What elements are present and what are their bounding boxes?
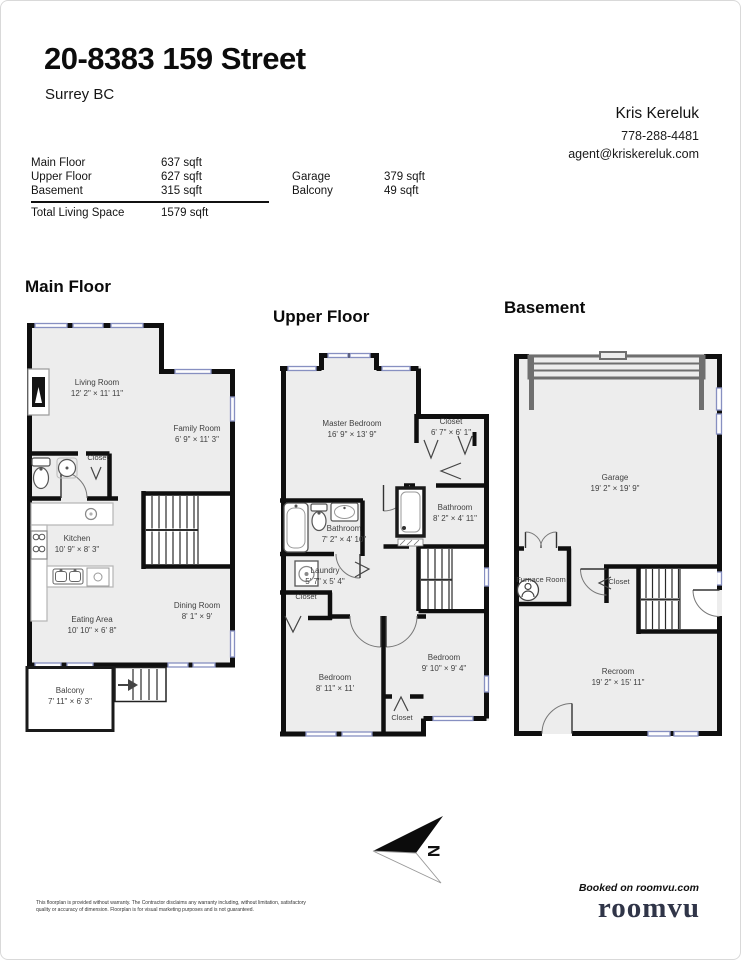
room-label: Garage 19' 2" × 19' 9": [591, 472, 640, 494]
room-label: Laundry 5' 7" x 5' 4": [305, 565, 344, 587]
room-label: Balcony 7' 11" × 6' 3": [48, 685, 92, 707]
staircase: [421, 549, 484, 609]
page-subtitle: Surrey BC: [45, 86, 114, 103]
heading-basement: Basement: [504, 298, 585, 318]
room-label: Closet: [87, 452, 108, 463]
area-extra-value: 379 sqft: [384, 171, 425, 183]
main-floor-drawing: [25, 319, 237, 739]
area-row-label: Main Floor: [31, 157, 85, 169]
area-total-value: 1579 sqft: [161, 207, 208, 219]
main-floor-plan: Living Room 12' 2" × 11' 11" Family Room…: [25, 319, 237, 739]
staircase: [641, 569, 717, 629]
double-sink-icon: [53, 569, 83, 584]
entry-stairs: [115, 668, 166, 702]
room-label: Bedroom 9' 10" × 9' 4": [422, 652, 467, 674]
table-divider: [31, 201, 269, 203]
area-row-label: Basement: [31, 185, 83, 197]
north-arrow-icon: N: [364, 807, 452, 891]
basement-plan: Garage 19' 2" × 19' 9" Furnace Room Clos…: [512, 350, 724, 740]
heading-upper-floor: Upper Floor: [273, 307, 369, 327]
bathtub-icon: [284, 503, 308, 552]
shower-icon: [397, 488, 424, 546]
room-label: Family Room 6' 9" × 11' 3": [173, 423, 220, 445]
area-row-label: Upper Floor: [31, 171, 92, 183]
roomvu-logo: roomvu: [598, 892, 700, 925]
stove-icon: [31, 531, 47, 559]
north-letter: N: [424, 845, 443, 857]
room-label: Bathroom 8' 2" × 4' 11": [433, 502, 477, 524]
agent-email: agent@kriskereluk.com: [568, 148, 699, 161]
area-extra-value: 49 sqft: [384, 185, 419, 197]
heading-main-floor: Main Floor: [25, 277, 111, 297]
room-label: Bathroom 7' 2" × 4' 10": [322, 523, 367, 545]
room-label: Eating Area 10' 10" × 6' 8": [68, 614, 117, 636]
area-row-value: 637 sqft: [161, 157, 202, 169]
room-label: Kitchen 10' 9" × 8' 3": [55, 533, 100, 555]
agent-phone: 778-288-4481: [568, 130, 699, 143]
staircase: [146, 496, 230, 564]
room-label: Recroom 19' 2" × 15' 11": [592, 666, 645, 688]
room-label: Furnace Room: [516, 574, 566, 585]
upper-floor-drawing: [278, 350, 492, 740]
room-label: Living Room 12' 2" × 11' 11": [71, 377, 123, 399]
area-row-value: 315 sqft: [161, 185, 202, 197]
dishwasher-icon: [87, 568, 109, 586]
room-label: Closet: [608, 576, 629, 587]
disclaimer-text: This floorplan is provided without warra…: [36, 900, 326, 914]
toilet-icon: [32, 458, 50, 489]
area-extra-label: Garage: [292, 171, 330, 183]
floorplan-page: 20-8383 159 Street Surrey BC Kris Kerelu…: [0, 0, 741, 960]
area-row-value: 627 sqft: [161, 171, 202, 183]
fireplace-icon: [28, 369, 49, 415]
area-extra-label: Balcony: [292, 185, 333, 197]
room-label: Closet 6' 7" × 6' 1": [431, 416, 471, 438]
area-total-label: Total Living Space: [31, 207, 124, 219]
room-label: Closet: [295, 591, 316, 602]
room-label: Master Bedroom 16' 9" × 13' 9": [322, 418, 381, 440]
agent-name: Kris Kereluk: [568, 106, 699, 122]
room-label: Bedroom 8' 11" × 11': [316, 672, 354, 694]
page-title: 20-8383 159 Street: [44, 41, 306, 77]
north-compass: N: [364, 807, 452, 891]
vanity-sink-icon: [331, 503, 358, 521]
agent-info: Kris Kereluk 778-288-4481 agent@kriskere…: [568, 106, 699, 167]
room-label: Closet: [391, 712, 412, 723]
upper-floor-plan: Master Bedroom 16' 9" × 13' 9" Closet 6'…: [278, 350, 492, 740]
room-label: Dining Room 8' 1" × 9': [174, 600, 220, 622]
